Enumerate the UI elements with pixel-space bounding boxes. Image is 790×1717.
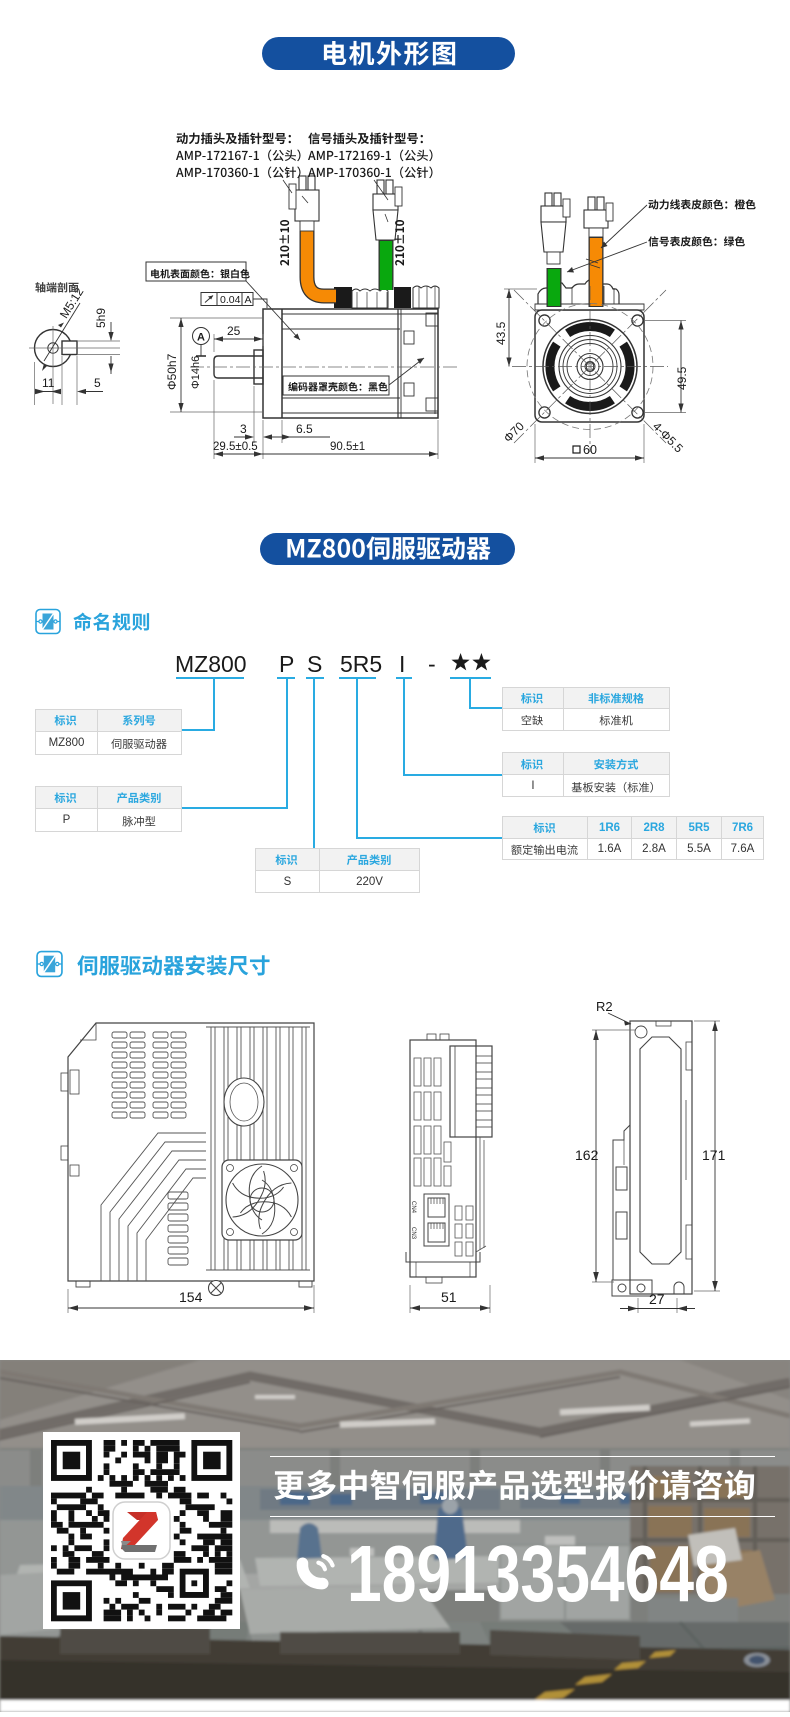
svg-text:49.5: 49.5 [675,366,689,390]
svg-text:CN4: CN4 [410,1201,416,1214]
svg-text:171: 171 [702,1147,726,1163]
svg-text:154: 154 [179,1289,203,1305]
svg-text:M5:12: M5:12 [57,285,87,321]
svg-text:3: 3 [240,422,247,436]
svg-text:6.5: 6.5 [296,422,313,436]
svg-text:5h9: 5h9 [94,308,108,328]
svg-text:A: A [197,332,205,344]
svg-text:60: 60 [583,443,597,457]
svg-text:90.5±1: 90.5±1 [330,441,365,453]
svg-text:Φ50h7: Φ50h7 [165,353,179,390]
svg-text:A: A [245,294,252,306]
svg-text:Φ70: Φ70 [501,419,527,445]
svg-text:Φ14h6: Φ14h6 [190,356,202,389]
svg-text:4-Φ5.5: 4-Φ5.5 [650,419,686,455]
svg-text:29.5±0.5: 29.5±0.5 [213,441,258,453]
svg-text:43.5: 43.5 [494,321,508,345]
svg-text:0.04: 0.04 [220,294,241,306]
svg-text:R2: R2 [596,999,613,1014]
svg-text:51: 51 [441,1289,457,1305]
svg-text:11: 11 [42,376,55,390]
svg-text:162: 162 [575,1147,599,1163]
svg-text:25: 25 [227,324,241,338]
svg-text:27: 27 [649,1291,665,1307]
svg-text:5: 5 [94,376,101,390]
svg-text:CN3: CN3 [410,1227,416,1240]
